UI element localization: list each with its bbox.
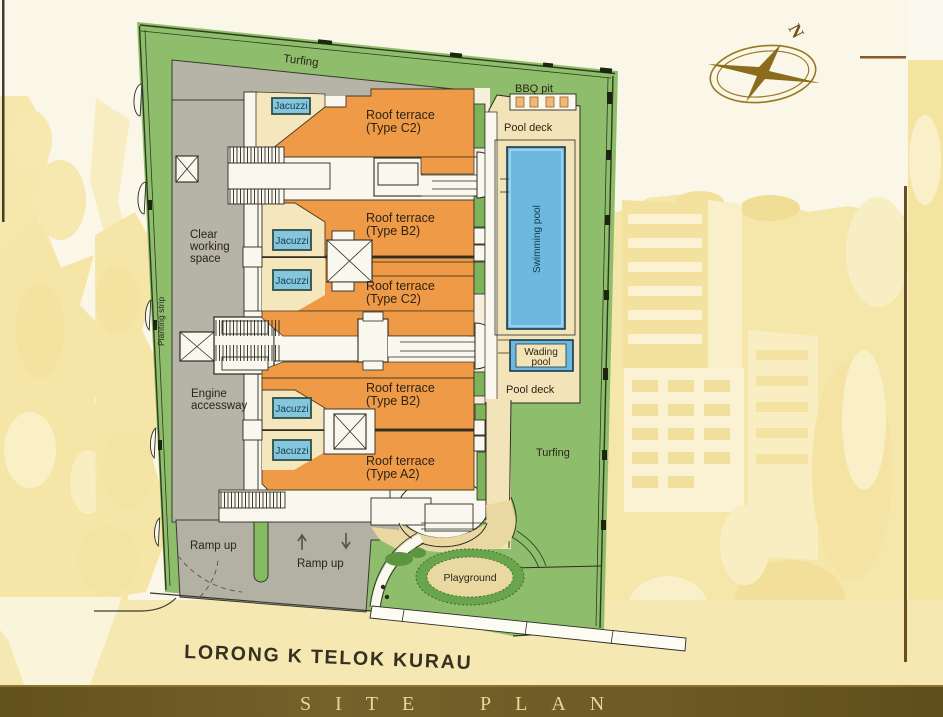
svg-text:Roof terrace: Roof terrace <box>366 108 435 122</box>
svg-text:Clear: Clear <box>190 229 218 241</box>
svg-text:(Type C2): (Type C2) <box>366 121 421 135</box>
svg-text:Ramp up: Ramp up <box>190 540 237 552</box>
svg-text:PLAN: PLAN <box>480 693 628 715</box>
svg-text:Roof terrace: Roof terrace <box>366 211 435 225</box>
svg-text:Ramp up: Ramp up <box>297 558 344 570</box>
svg-text:Planting strip: Planting strip <box>156 297 166 346</box>
svg-text:Jacuzzi: Jacuzzi <box>275 236 308 247</box>
svg-text:Playground: Playground <box>443 572 496 584</box>
svg-text:Swimming pool: Swimming pool <box>532 205 543 273</box>
svg-text:(Type B2): (Type B2) <box>366 224 420 238</box>
svg-text:Pool deck: Pool deck <box>504 122 553 134</box>
svg-text:Jacuzzi: Jacuzzi <box>274 101 307 112</box>
svg-text:Roof terrace: Roof terrace <box>366 454 435 468</box>
svg-text:Pool deck: Pool deck <box>506 384 555 396</box>
svg-text:Roof terrace: Roof terrace <box>366 279 435 293</box>
svg-text:space: space <box>190 253 221 265</box>
svg-text:(Type B2): (Type B2) <box>366 394 420 408</box>
svg-text:Turfing: Turfing <box>536 447 570 459</box>
svg-text:Jacuzzi: Jacuzzi <box>275 276 308 287</box>
svg-text:Jacuzzi: Jacuzzi <box>275 404 308 415</box>
svg-text:BBQ pit: BBQ pit <box>515 83 553 95</box>
svg-text:Jacuzzi: Jacuzzi <box>275 446 308 457</box>
svg-text:Roof terrace: Roof terrace <box>366 381 435 395</box>
svg-text:working: working <box>189 241 230 253</box>
svg-text:(Type C2): (Type C2) <box>366 292 421 306</box>
svg-text:SITE: SITE <box>300 693 438 715</box>
svg-text:accessway: accessway <box>191 400 247 412</box>
svg-text:(Type A2): (Type A2) <box>366 467 420 481</box>
svg-text:Engine: Engine <box>191 388 227 400</box>
svg-text:pool: pool <box>532 357 551 368</box>
